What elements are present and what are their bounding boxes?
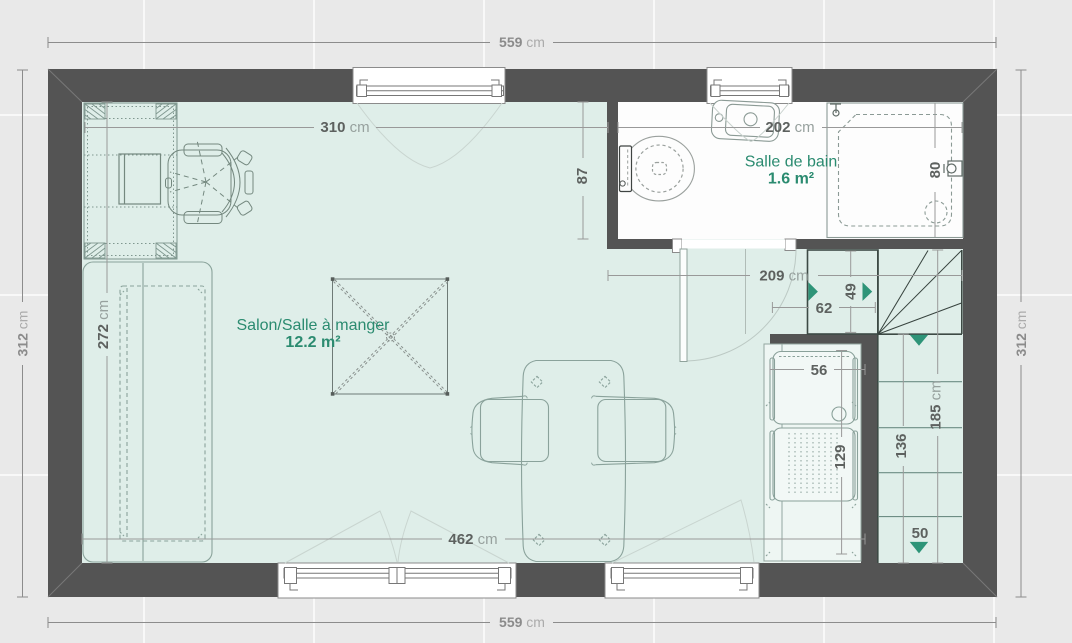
svg-text:50: 50: [912, 525, 929, 542]
svg-text:56: 56: [811, 362, 828, 379]
svg-text:272 cm: 272 cm: [95, 300, 112, 349]
svg-text:312 cm: 312 cm: [15, 311, 31, 357]
svg-text:Salle de bain: Salle de bain: [745, 154, 838, 171]
svg-text:62: 62: [816, 300, 833, 317]
svg-text:310 cm: 310 cm: [320, 119, 369, 136]
svg-text:87: 87: [574, 168, 591, 185]
svg-text:Salon/Salle à manger: Salon/Salle à manger: [237, 317, 391, 334]
svg-text:559 cm: 559 cm: [499, 614, 545, 630]
svg-text:49: 49: [843, 283, 860, 300]
svg-text:202 cm: 202 cm: [765, 119, 814, 136]
svg-text:129: 129: [832, 444, 849, 469]
svg-text:462 cm: 462 cm: [448, 531, 497, 548]
svg-text:1.6 m²: 1.6 m²: [768, 171, 814, 188]
svg-text:312 cm: 312 cm: [1013, 311, 1029, 357]
svg-text:136: 136: [893, 433, 910, 458]
svg-text:185 cm: 185 cm: [928, 380, 945, 429]
svg-text:80: 80: [927, 162, 944, 179]
svg-text:209 cm: 209 cm: [759, 268, 808, 285]
svg-text:12.2 m²: 12.2 m²: [285, 334, 340, 351]
svg-text:559 cm: 559 cm: [499, 34, 545, 50]
